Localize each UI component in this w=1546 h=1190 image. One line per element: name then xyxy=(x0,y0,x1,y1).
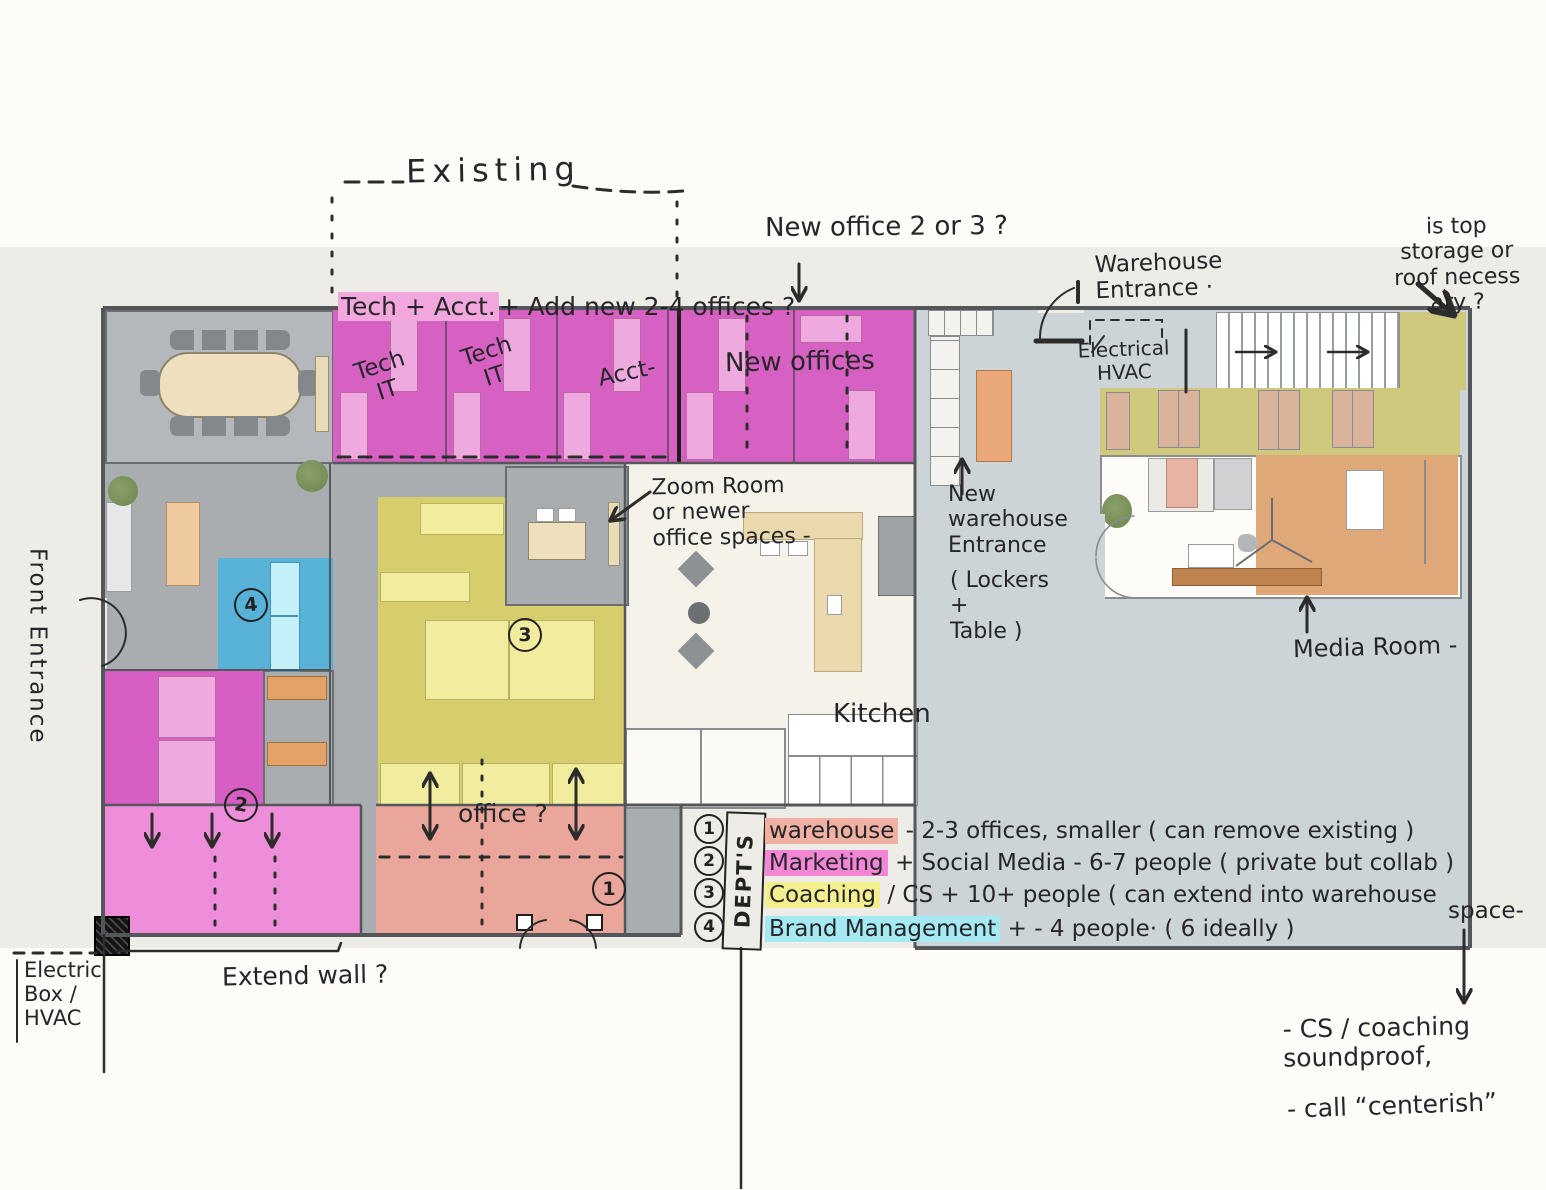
legend-row-warehouse: warehouse - 2-3 offices, smaller ( can r… xyxy=(765,818,1414,844)
floor-plan-sketch: Existing Tech + Acct.+ Add new 2-4 offic… xyxy=(0,0,1546,1190)
zone-marker-3: 3 xyxy=(508,618,542,652)
legend-space-note: space- xyxy=(1448,898,1524,924)
legend-num-1: 1 xyxy=(694,814,724,844)
top-storage-note: is top storage or roof necess ary ? xyxy=(1367,212,1546,316)
existing-label: Existing xyxy=(406,150,581,190)
cs-coaching-note: - CS / coaching soundproof, xyxy=(1283,1012,1471,1073)
office-question: office ? xyxy=(458,800,548,829)
legend-title: DEPT'S xyxy=(730,833,757,929)
legend-title-box: DEPT'S xyxy=(722,811,767,950)
legend-name-warehouse: warehouse xyxy=(765,818,898,844)
legend-num-3: 3 xyxy=(694,878,724,908)
legend-row-coaching: Coaching / CS + 10+ people ( can extend … xyxy=(765,882,1437,908)
ceiling-fan xyxy=(1236,498,1312,566)
add-new-offices-note: + Add new 2-4 offices ? xyxy=(499,292,795,321)
media-room-note: Media Room - xyxy=(1293,632,1458,664)
legend-num-2: 2 xyxy=(694,846,724,876)
room-label-new-offices: New offices xyxy=(725,347,875,380)
legend-row-marketing: Marketing + Social Media - 6-7 people ( … xyxy=(765,850,1454,876)
tech-acct-note: Tech + Acct.+ Add new 2-4 offices ? xyxy=(338,264,795,322)
new-warehouse-entrance-note: New warehouse Entrance xyxy=(948,482,1068,558)
legend-desc-coaching: / CS + 10+ people ( can extend into ware… xyxy=(880,882,1437,908)
lockers-table-note: ( Lockers + Table ) xyxy=(950,568,1049,644)
legend-row-brand: Brand Management + - 4 people· ( 6 ideal… xyxy=(765,916,1295,942)
zone-marker-1: 1 xyxy=(592,872,626,906)
new-office-note: New office 2 or 3 ? xyxy=(765,212,1008,244)
front-entrance-label: Front Entrance xyxy=(24,548,50,745)
electrical-hvac-note: Electrical HVAC xyxy=(1077,336,1170,385)
electric-box-note: Electric Box / HVAC xyxy=(24,958,102,1030)
tech-acct-highlight: Tech + Acct. xyxy=(338,292,499,321)
legend-desc-warehouse: - 2-3 offices, smaller ( can remove exis… xyxy=(898,818,1414,844)
warehouse-entrance-note: Warehouse Entrance · xyxy=(1094,248,1224,305)
extend-wall-note: Extend wall ? xyxy=(222,961,389,993)
ink-marks xyxy=(14,182,1464,1188)
kitchen-label: Kitchen xyxy=(833,700,931,730)
legend-num-4: 4 xyxy=(694,912,724,942)
zoom-room-note: Zoom Room or newer office spaces - xyxy=(651,473,811,552)
legend-desc-brand: + - 4 people· ( 6 ideally ) xyxy=(1000,916,1294,942)
legend-name-brand: Brand Management xyxy=(765,916,1000,942)
ink-overlay xyxy=(0,0,1546,1190)
legend-desc-marketing: + Social Media - 6-7 people ( private bu… xyxy=(888,850,1454,876)
legend-name-coaching: Coaching xyxy=(765,882,880,908)
legend-name-marketing: Marketing xyxy=(765,850,888,876)
